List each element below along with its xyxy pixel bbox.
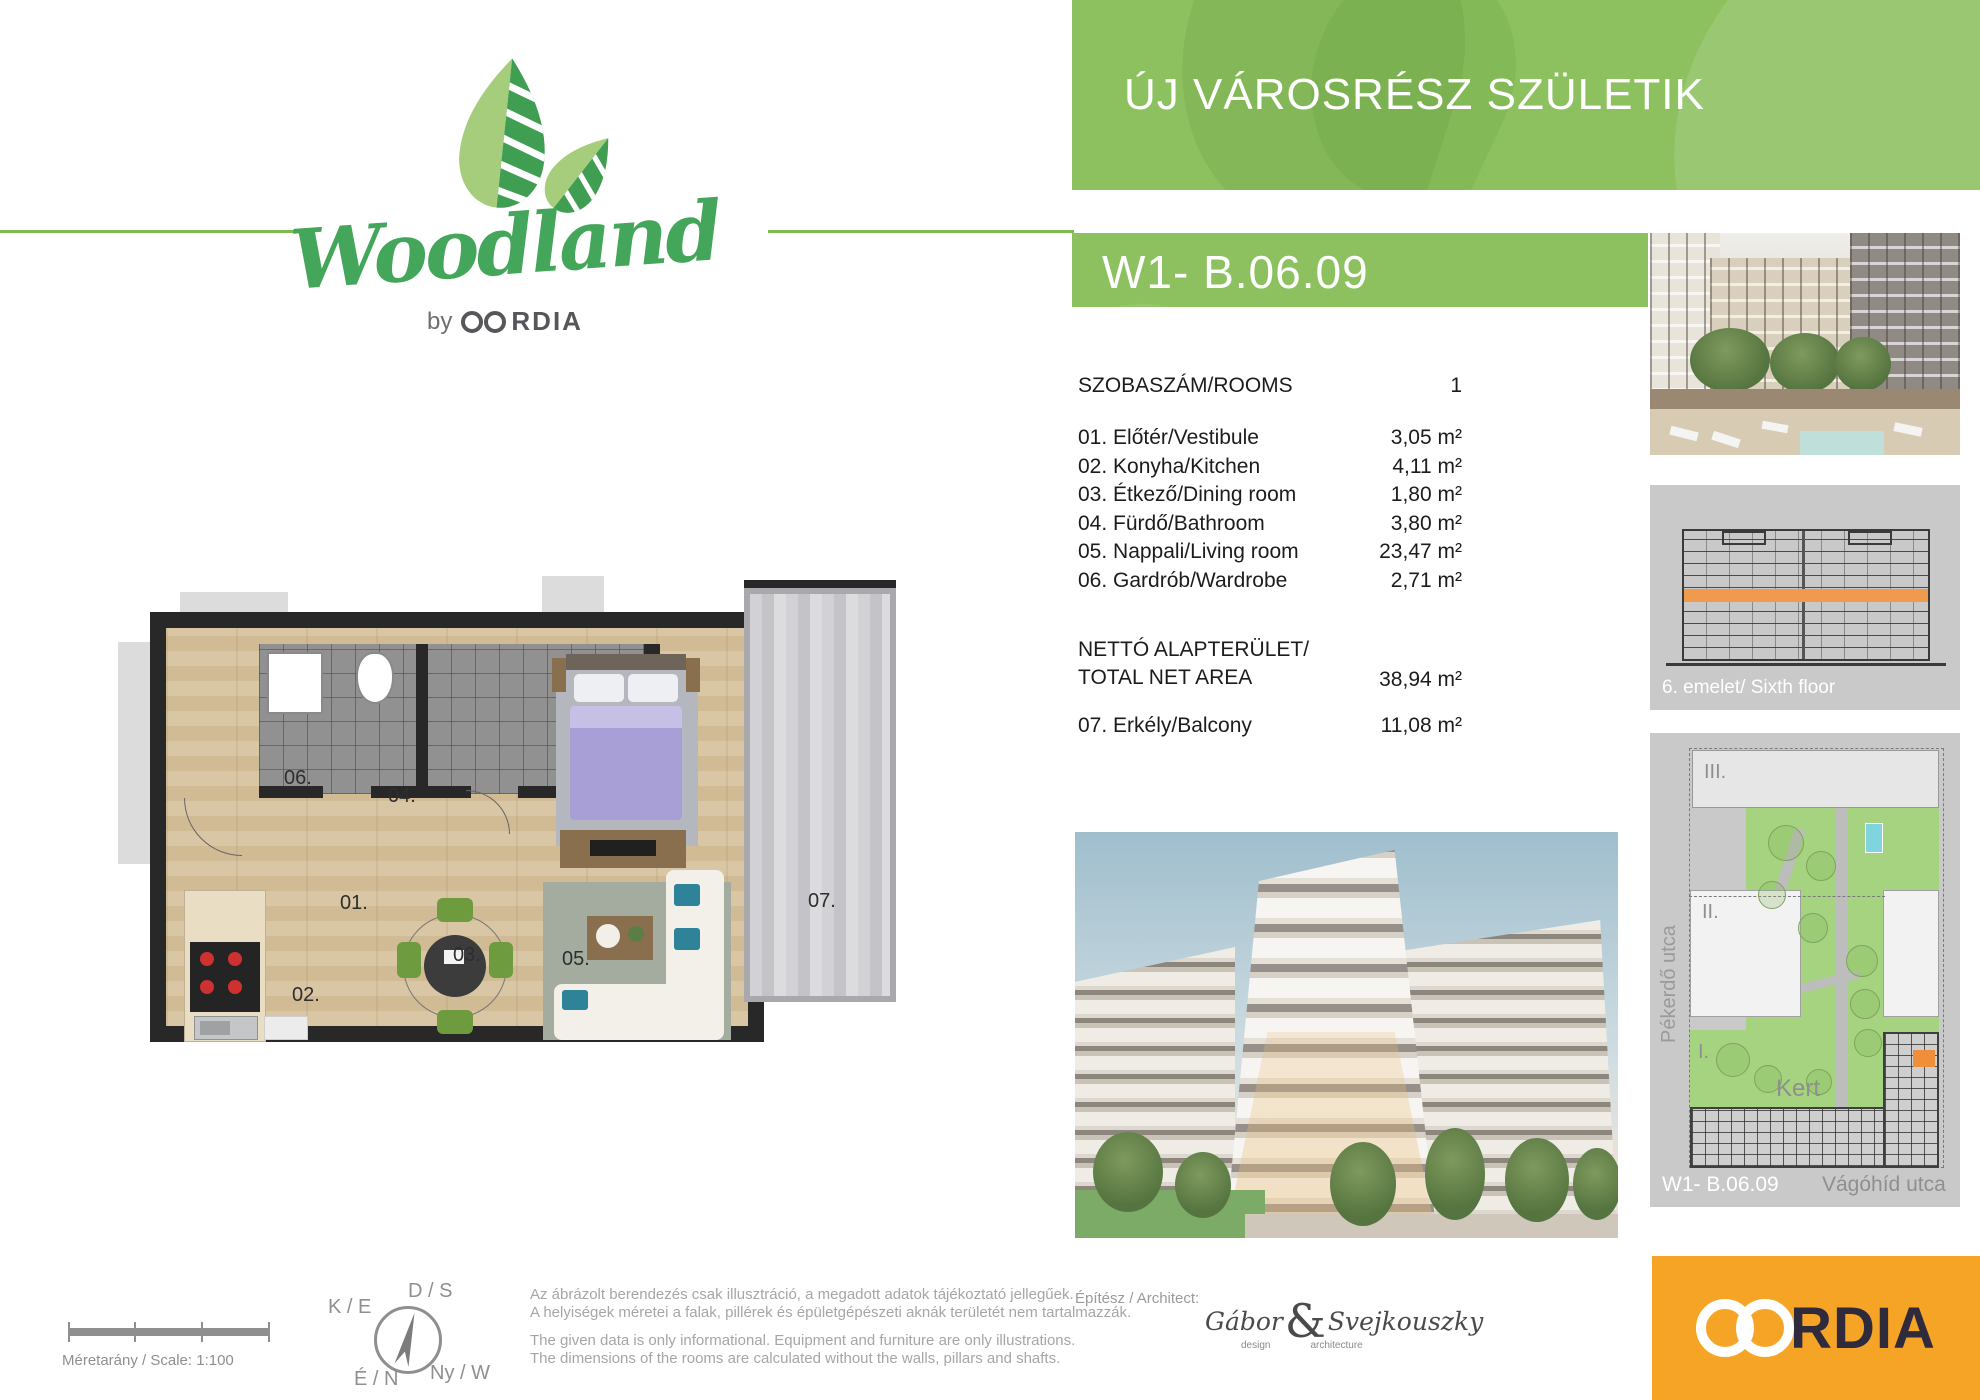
disclaimer-en-2: The dimensions of the rooms are calculat… xyxy=(530,1350,1060,1367)
architect-sub-architecture: architecture xyxy=(1310,1340,1362,1351)
divider-line xyxy=(768,230,1074,233)
block-label: I. xyxy=(1698,1041,1709,1064)
site-plan-panel: III. II. I. Kert Pékerdő utca W1- B.06.0… xyxy=(1650,733,1960,1207)
tree-icon xyxy=(1768,825,1804,861)
tree-icon xyxy=(1425,1128,1485,1220)
chair xyxy=(397,942,421,978)
door-swing-arc xyxy=(466,790,510,834)
compass-label-east: K / E xyxy=(328,1296,371,1319)
headline-banner: ÚJ VÁROSRÉSZ SZÜLETIK xyxy=(1072,0,1980,190)
courtyard-photo xyxy=(1650,233,1960,455)
headline-text: ÚJ VÁROSRÉSZ SZÜLETIK xyxy=(1124,70,1705,120)
pool xyxy=(1800,431,1884,455)
room-row: 02. Konyha/Kitchen 4,11 m² xyxy=(1078,453,1462,482)
tree-icon xyxy=(1093,1132,1163,1212)
cushion xyxy=(562,990,588,1010)
plan-room-label: 03. xyxy=(453,944,481,967)
room-row: 05. Nappali/Living room 23,47 m² xyxy=(1078,538,1462,567)
room-area: 3,05 m² xyxy=(1391,424,1462,453)
wall-shading xyxy=(542,576,604,612)
architect-sub-design: design xyxy=(1241,1340,1270,1351)
burner xyxy=(200,952,214,966)
building-render-photo xyxy=(1075,832,1618,1238)
room-row: 03. Étkező/Dining room 1,80 m² xyxy=(1078,481,1462,510)
plan-room-label: 05. xyxy=(562,948,590,971)
plant xyxy=(628,926,644,942)
tree-icon xyxy=(1770,333,1840,393)
tree-icon xyxy=(1573,1148,1618,1220)
interior-wall xyxy=(371,786,471,798)
street-label-left: Pékerdő utca xyxy=(1658,883,1681,1043)
balcony-label: 07. Erkély/Balcony xyxy=(1078,714,1252,738)
room-area: 23,47 m² xyxy=(1379,538,1462,567)
tree-icon xyxy=(1690,328,1770,392)
room-label: 02. Konyha/Kitchen xyxy=(1078,453,1260,482)
cordia-infinity-icon xyxy=(1736,1299,1794,1357)
logo-wordmark: Woodland xyxy=(287,183,723,309)
room-row: 01. Előtér/Vestibule 3,05 m² xyxy=(1078,424,1462,453)
tree-icon xyxy=(1330,1142,1396,1226)
balcony: 07. xyxy=(744,588,896,1002)
logo-by-label: by xyxy=(427,308,452,336)
logo-byline: by RDIA xyxy=(380,306,630,337)
room-label: 04. Fürdő/Bathroom xyxy=(1078,510,1265,539)
room-row: 06. Gardrób/Wardrobe 2,71 m² xyxy=(1078,567,1462,596)
net-area-row: NETTÓ ALAPTERÜLET/ TOTAL NET AREA 38,94 … xyxy=(1078,636,1462,692)
tree-icon xyxy=(1758,881,1786,909)
cordia-wordmark: RDIA xyxy=(1790,1295,1936,1362)
cushion xyxy=(674,928,700,950)
compass-label-west: Ny / W xyxy=(430,1362,490,1385)
tray xyxy=(596,924,620,948)
bed-fold xyxy=(570,706,682,728)
door-swing-arc xyxy=(184,798,242,856)
plan-room-label: 07. xyxy=(808,890,836,913)
unit-banner: W1- B.06.09 xyxy=(1072,233,1648,307)
room-area: 2,71 m² xyxy=(1391,567,1462,596)
divider-line xyxy=(0,230,300,233)
room-area: 3,80 m² xyxy=(1391,510,1462,539)
plan-room-label: 04. xyxy=(388,785,416,808)
wall-shading xyxy=(118,642,152,864)
scale-label: Méretarány / Scale: 1:100 xyxy=(62,1352,234,1369)
nightstand xyxy=(552,658,566,692)
tree-icon xyxy=(1806,851,1836,881)
cushion xyxy=(674,884,700,906)
unit-code: W1- B.06.09 xyxy=(1102,245,1369,299)
roof-setback xyxy=(1722,531,1766,545)
green-strip xyxy=(1926,808,1939,888)
architect-signature: Gábor & Svejkouszky design architecture xyxy=(1205,1294,1435,1351)
burner xyxy=(200,980,214,994)
pillow xyxy=(574,674,624,702)
building-section-drawing xyxy=(1682,529,1930,661)
plan-room-label: 01. xyxy=(340,892,368,915)
site-unit-label: W1- B.06.09 xyxy=(1662,1173,1779,1197)
chair xyxy=(437,1010,473,1034)
architect-last-name: Svejkouszky xyxy=(1328,1307,1483,1336)
scale-tick xyxy=(268,1322,270,1342)
building-block-iii xyxy=(1692,750,1939,808)
pool xyxy=(1865,823,1883,853)
compass-label-north: É / N xyxy=(354,1368,398,1391)
tv xyxy=(590,840,656,856)
compass-needle-icon xyxy=(390,1310,426,1368)
wall-shading xyxy=(180,592,288,612)
cordia-infinity-icon xyxy=(484,311,506,333)
room-label: 05. Nappali/Living room xyxy=(1078,538,1299,567)
room-area: 4,11 m² xyxy=(1392,453,1462,482)
tree-icon xyxy=(1716,1043,1750,1077)
scale-tick xyxy=(134,1322,136,1342)
room-label: 01. Előtér/Vestibule xyxy=(1078,424,1259,453)
stove xyxy=(190,942,260,1012)
ground-line xyxy=(1666,663,1946,666)
room-rows: 01. Előtér/Vestibule 3,05 m² 02. Konyha/… xyxy=(1078,424,1462,595)
roof-setback xyxy=(1848,531,1892,545)
scale-bar xyxy=(68,1328,270,1336)
cordia-infinity-icon xyxy=(461,311,483,333)
room-label: 06. Gardrób/Wardrobe xyxy=(1078,567,1287,596)
rooms-header-value: 1 xyxy=(1450,374,1462,398)
highlighted-unit xyxy=(1913,1050,1935,1067)
net-area-value: 38,94 m² xyxy=(1379,668,1462,692)
architect-label: Építész / Architect: xyxy=(1075,1290,1199,1307)
tree-icon xyxy=(1798,913,1828,943)
toilet xyxy=(356,652,394,704)
chair xyxy=(437,898,473,922)
retaining-wall xyxy=(1650,389,1960,409)
chair xyxy=(489,942,513,978)
cordia-logo: RDIA xyxy=(1696,1295,1936,1362)
site-section-line xyxy=(1689,896,1885,897)
pavement xyxy=(1245,1214,1618,1238)
apartment-flyer-page: ÚJ VÁROSRÉSZ SZÜLETIK W1- B.06.09 xyxy=(0,0,1980,1400)
floor-caption: 6. emelet/ Sixth floor xyxy=(1662,677,1835,699)
disclaimer-hu-1: Az ábrázolt berendezés csak illusztráció… xyxy=(530,1286,1074,1303)
highlighted-floor xyxy=(1684,589,1928,602)
logo-company-label: RDIA xyxy=(511,306,583,337)
net-area-label: NETTÓ ALAPTERÜLET/ TOTAL NET AREA xyxy=(1078,636,1309,692)
tree-icon xyxy=(1505,1138,1569,1222)
kitchen-cabinet xyxy=(264,1016,308,1040)
tree-icon xyxy=(1854,1029,1882,1057)
room-schedule-header: SZOBASZÁM/ROOMS 1 xyxy=(1078,374,1462,398)
scale-tick xyxy=(201,1322,203,1342)
block-label: III. xyxy=(1704,761,1726,784)
burner xyxy=(228,980,242,994)
sink-basin xyxy=(200,1021,230,1035)
interior-wall xyxy=(416,644,428,794)
plan-room-label: 06. xyxy=(284,767,312,790)
room-row: 04. Fürdő/Bathroom 3,80 m² xyxy=(1078,510,1462,539)
building-section-panel: 6. emelet/ Sixth floor xyxy=(1650,485,1960,710)
tree-icon xyxy=(1850,989,1880,1019)
architect-first-name: Gábor xyxy=(1205,1307,1283,1336)
burner xyxy=(228,952,242,966)
street-label-bottom: Vágóhíd utca xyxy=(1822,1173,1946,1197)
block-label: II. xyxy=(1702,901,1719,924)
tree-icon xyxy=(1175,1152,1231,1218)
balcony-area: 11,08 m² xyxy=(1381,714,1462,738)
scale-tick xyxy=(68,1322,70,1342)
compass-label-south: D / S xyxy=(408,1280,452,1303)
garden-label: Kert xyxy=(1776,1075,1820,1103)
tree-icon xyxy=(1846,945,1878,977)
disclaimer-en-1: The given data is only informational. Eq… xyxy=(530,1332,1075,1349)
bed-headboard xyxy=(566,654,686,670)
nightstand xyxy=(686,658,700,692)
floor-plan: 01. 02. 03. 04. 05. 06. 07. xyxy=(118,562,908,1050)
balcony-row: 07. Erkély/Balcony 11,08 m² xyxy=(1078,714,1462,738)
building-block-right xyxy=(1883,890,1939,1017)
room-label: 03. Étkező/Dining room xyxy=(1078,481,1296,510)
plan-room-label: 02. xyxy=(292,984,320,1007)
cordia-footer-block: RDIA xyxy=(1652,1256,1980,1400)
room-area: 1,80 m² xyxy=(1391,481,1462,510)
shower xyxy=(267,652,323,714)
apartment-outline: 01. 02. 03. 04. 05. 06. xyxy=(150,612,764,1042)
disclaimer-hu-2: A helyiségek méretei a falak, pillérek é… xyxy=(530,1304,1131,1321)
pillow xyxy=(628,674,678,702)
tree-icon xyxy=(1835,337,1891,391)
rooms-header-label: SZOBASZÁM/ROOMS xyxy=(1078,374,1293,398)
